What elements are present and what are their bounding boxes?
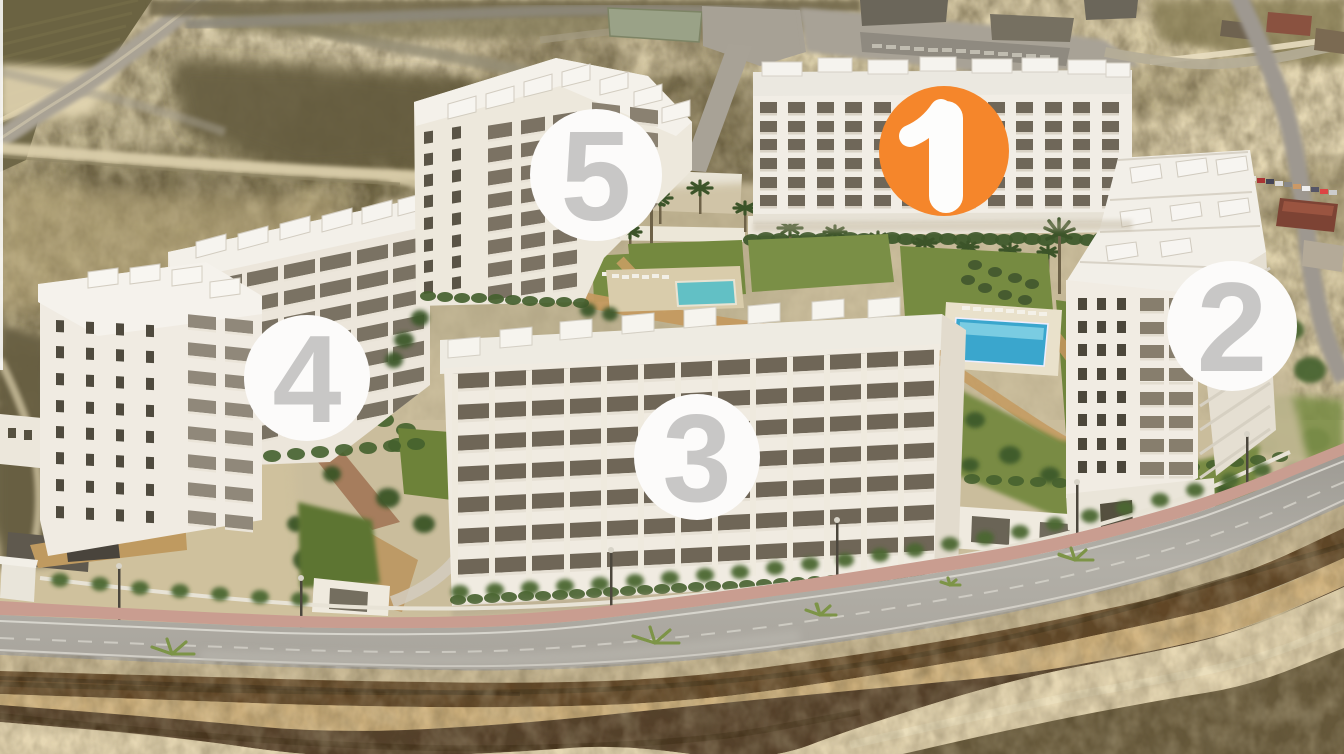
svg-text:5: 5	[561, 105, 632, 247]
svg-text:3: 3	[663, 390, 732, 528]
svg-text:2: 2	[1197, 256, 1268, 398]
svg-text:4: 4	[273, 311, 342, 449]
